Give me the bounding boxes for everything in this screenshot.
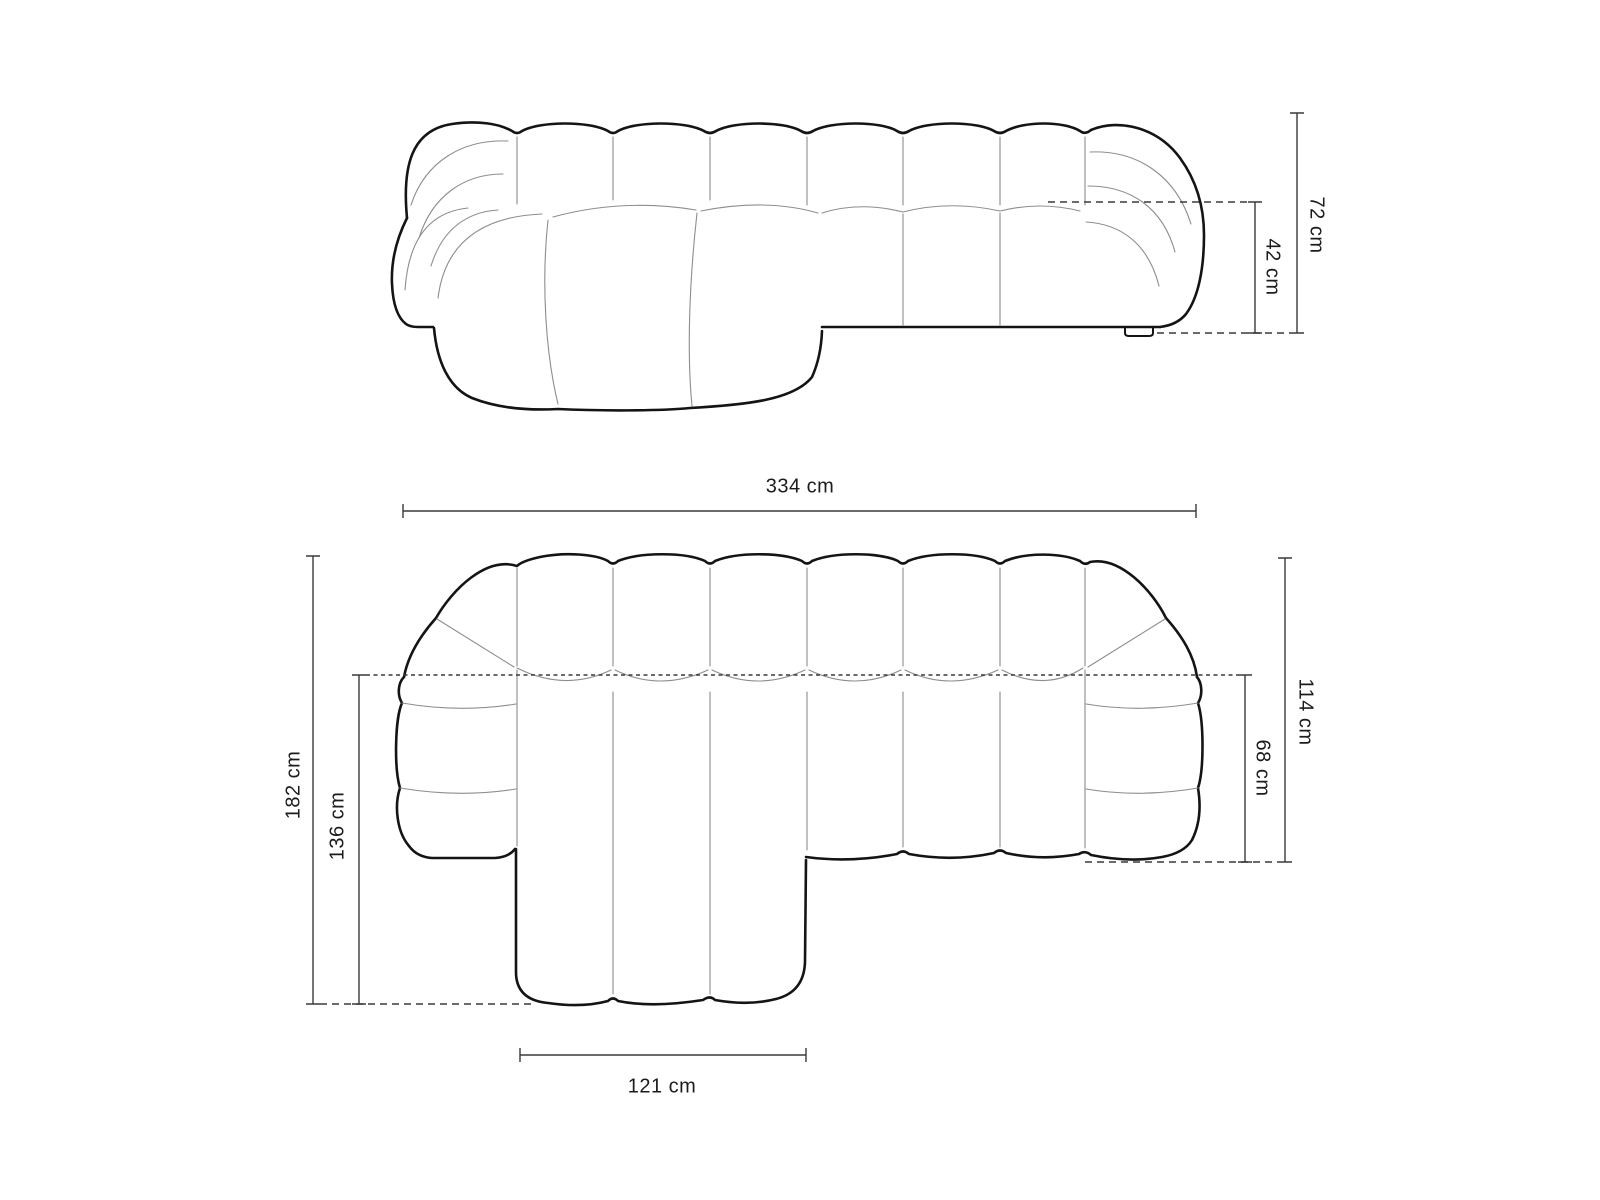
sofa-front-view — [392, 122, 1204, 410]
dim-label-chaise-width: 121 cm — [628, 1076, 697, 1099]
sofa-dimension-diagram: 72 cm 42 cm 334 cm 182 cm 136 cm 114 cm … — [0, 0, 1600, 1200]
diagram-linework — [0, 0, 1600, 1200]
dim-label-total-width: 334 cm — [766, 476, 835, 499]
sofa-plan-view — [396, 554, 1202, 1005]
dim-label-total-depth: 182 cm — [283, 751, 306, 820]
dim-label-body-depth: 114 cm — [1294, 678, 1317, 745]
dim-label-chaise-depth: 136 cm — [327, 792, 350, 861]
dim-label-seat-height: 42 cm — [1261, 239, 1284, 296]
front-view-dimensions — [1048, 113, 1304, 333]
sofa-foot — [1125, 327, 1153, 336]
dim-label-total-height: 72 cm — [1305, 197, 1328, 254]
dim-label-seat-depth: 68 cm — [1251, 740, 1274, 797]
